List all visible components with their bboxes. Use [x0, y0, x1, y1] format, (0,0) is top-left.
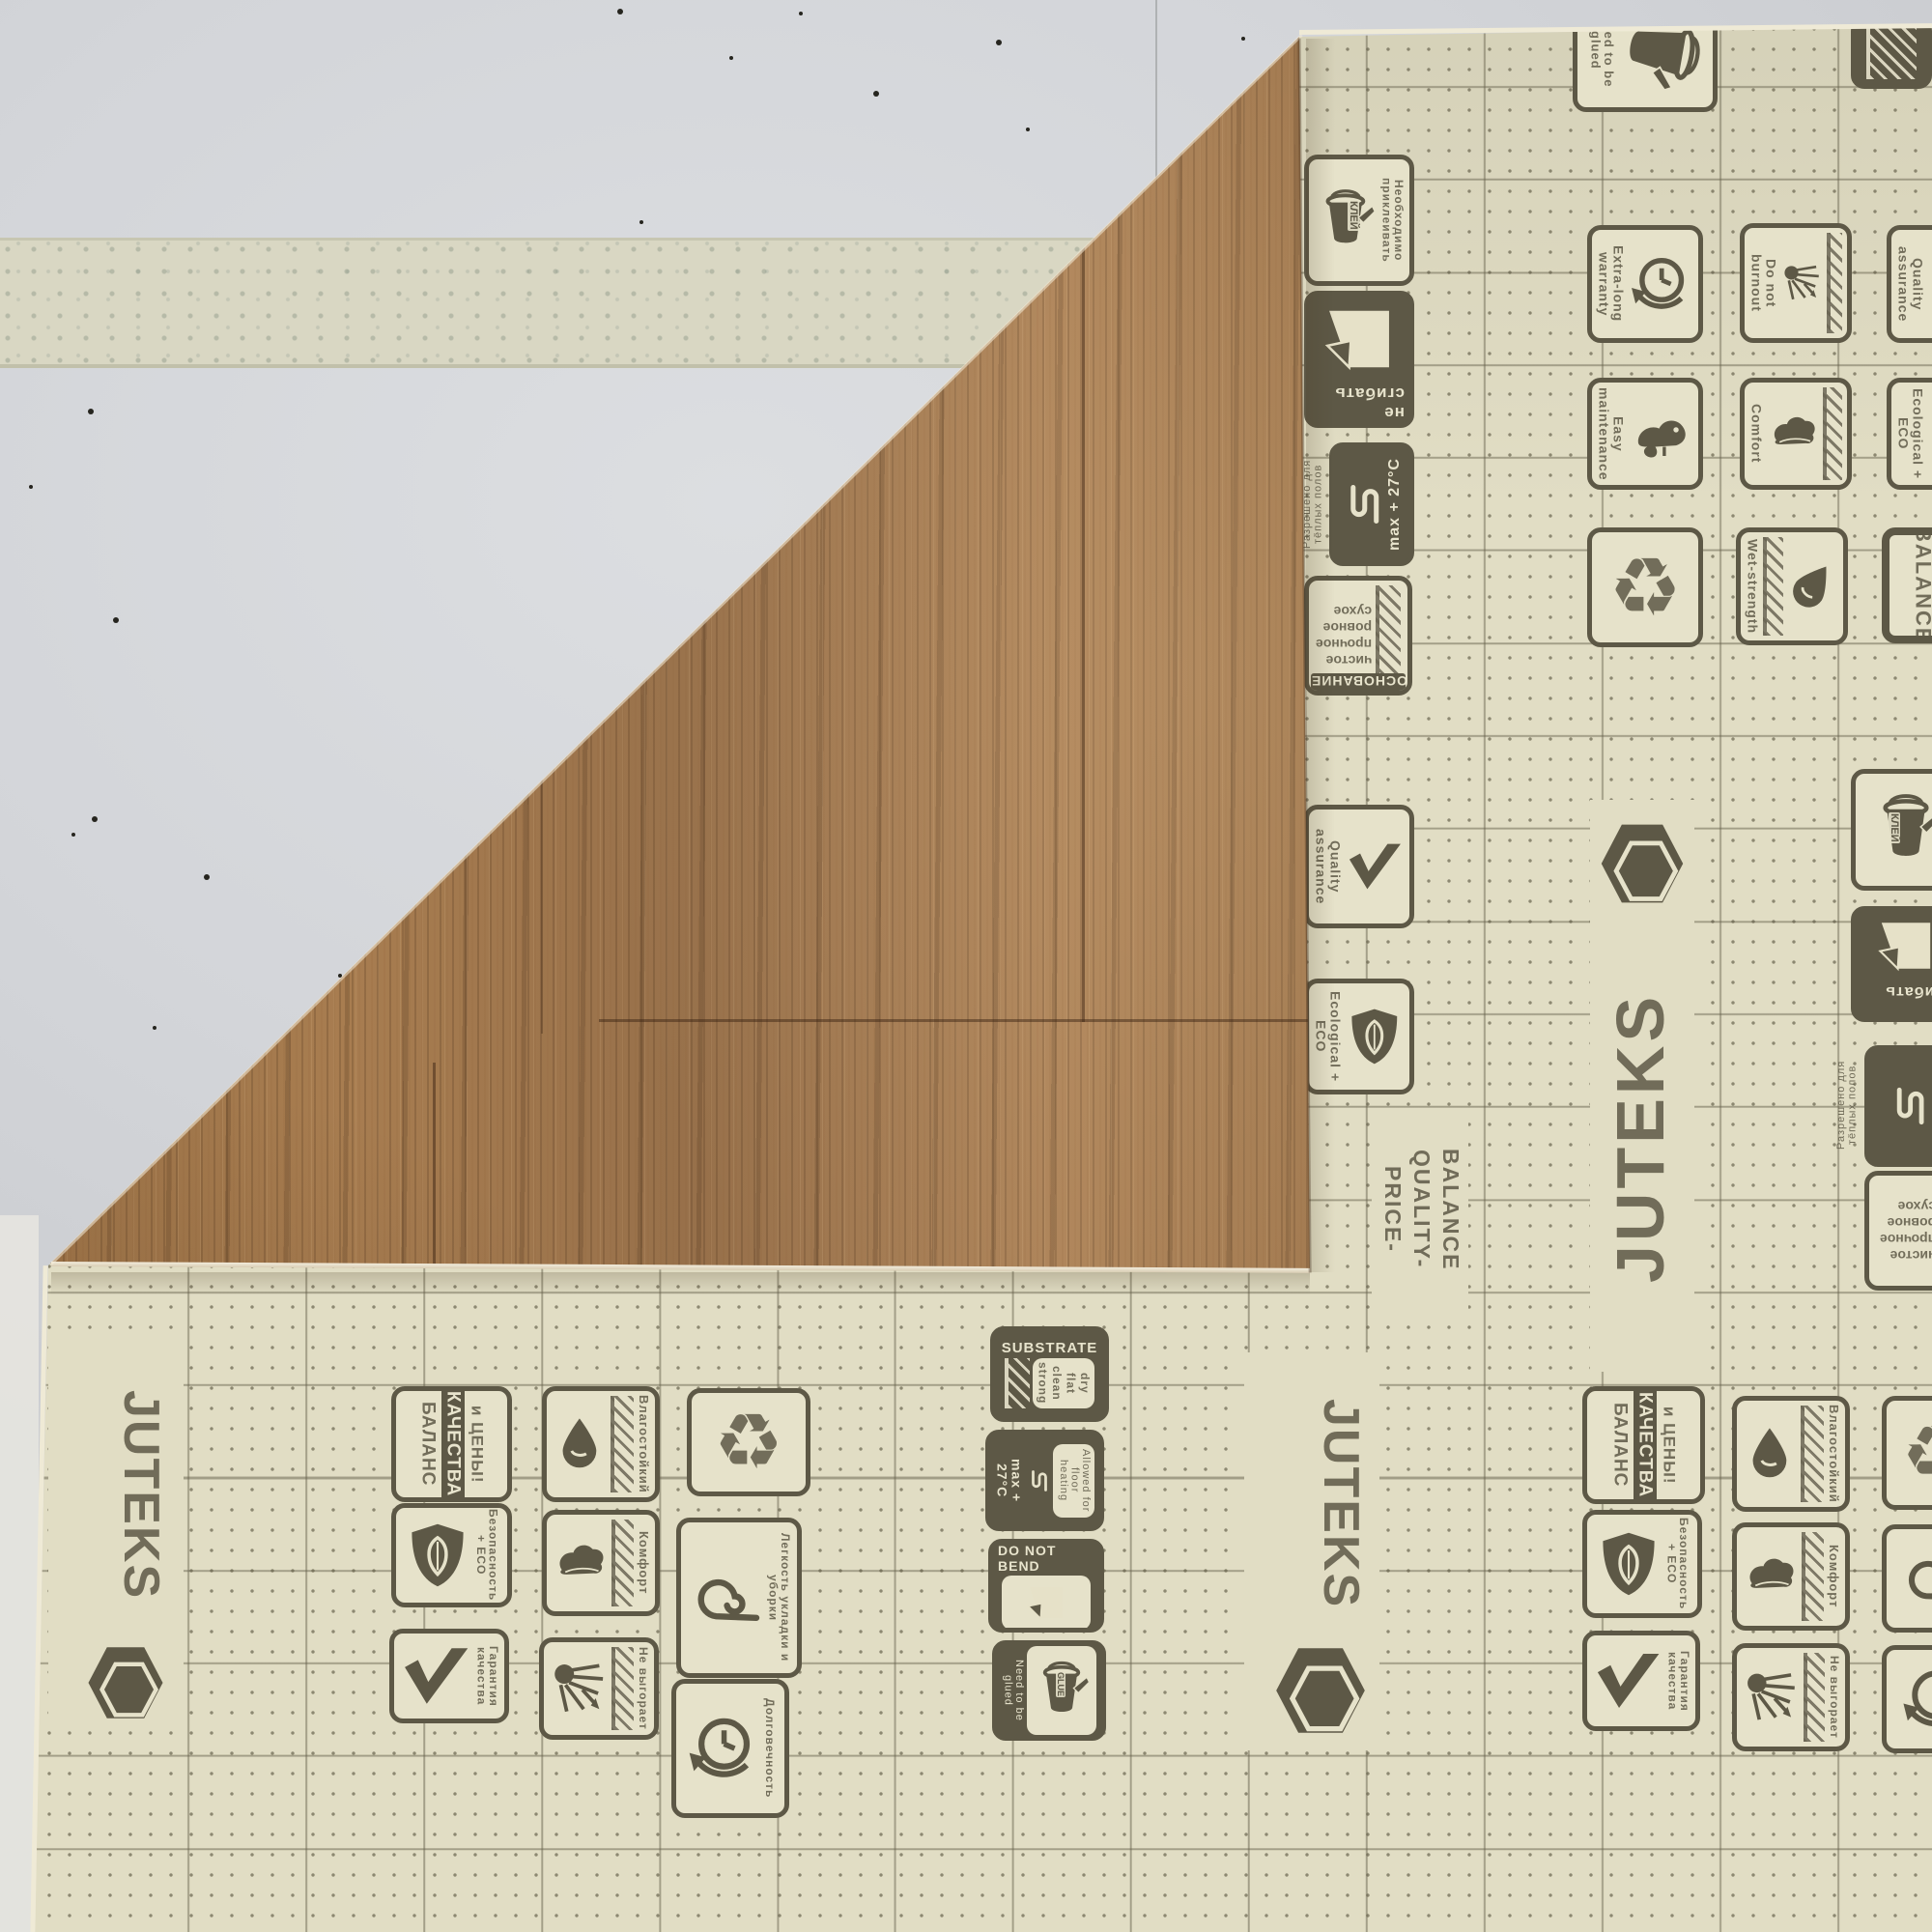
- tile-label: Не выгорает: [1828, 1656, 1840, 1739]
- tile-label: Необходимо приклеивать: [1380, 164, 1405, 276]
- plank-seam: [433, 1063, 436, 1265]
- clock-warranty-icon: [1628, 240, 1693, 328]
- tile-easy-maintenance: Easy maintenance: [1587, 378, 1703, 490]
- tile-glue-ru-partial: КЛЕЙ: [1851, 769, 1932, 891]
- heating-note: Allowed for floor heating: [1057, 1448, 1091, 1514]
- clock-warranty-icon: [685, 1704, 760, 1793]
- juteks-hexagon-logo: [1267, 1642, 1374, 1739]
- tile-safety-eco-ru: Безопасность + ECO: [1582, 1510, 1702, 1618]
- shield-leaf-icon: [404, 1512, 471, 1599]
- glue-panel: GLUE: [1027, 1646, 1096, 1735]
- tile-label: Extra-long warranty: [1597, 235, 1625, 333]
- debris-specks: [0, 0, 4, 4]
- substrate-body: dry flat clean strong: [1005, 1358, 1094, 1408]
- hatch-icon: [611, 1647, 634, 1730]
- tile-label: Comfort: [1749, 404, 1764, 463]
- tile-extra-long-warranty: Extra-long warranty: [1587, 225, 1703, 343]
- tile-no-fade-ru: Не выгорает: [539, 1637, 659, 1740]
- tile-label: max + 27°C: [1387, 458, 1404, 551]
- juteks-hexagon-logo: [73, 1642, 178, 1723]
- condition: strong: [1037, 1362, 1049, 1404]
- juteks-wordmark: JUTEKS: [1602, 920, 1690, 1356]
- hatch-icon: [1827, 233, 1842, 333]
- shield-leaf-icon: [1345, 994, 1405, 1079]
- balance-word: БАЛАНС: [418, 1402, 438, 1486]
- tile-title: SUBSTRATE: [1002, 1340, 1098, 1356]
- tile-label: Безопасность + ECO: [474, 1509, 498, 1601]
- tile-comfort: Comfort: [1740, 378, 1852, 490]
- tile-label: Quality assurance: [1896, 235, 1924, 333]
- juteks-hexagon-logo: [1596, 808, 1689, 920]
- balance-word: БАЛАНС: [1610, 1403, 1630, 1487]
- tile-do-not-bend-en: DO NOT BEND: [988, 1539, 1104, 1633]
- fold-shadow-bottom: [51, 1272, 1310, 1295]
- folded-sheet-icon: [1021, 1579, 1071, 1626]
- tile-label: Need to be glued: [1002, 1650, 1024, 1731]
- sun-icon: [1780, 239, 1823, 327]
- hatch-icon: [1376, 585, 1401, 686]
- plank-seam: [599, 1019, 1310, 1022]
- tile-title: DO NOT BEND: [998, 1543, 1094, 1574]
- tile-label: Easy maintenance: [1597, 387, 1625, 481]
- beret-icon: [552, 1525, 609, 1601]
- balance-word: и ЦЕНЫ!: [1661, 1406, 1678, 1485]
- tile-balance-quality-price-ru: БАЛАНС КАЧЕСТВА и ЦЕНЫ!: [391, 1386, 512, 1502]
- warm-floor-label: Разрешено для тёплых полов: [1836, 1051, 1859, 1159]
- tile-label: Do not burnout: [1749, 233, 1777, 333]
- hatch-icon: [1802, 1532, 1824, 1621]
- tile-recyclable-partial: ♻: [1882, 1396, 1932, 1510]
- floor-heating-loop-icon: [1026, 1440, 1050, 1521]
- glue-bucket-label: КЛЕЙ: [1348, 200, 1359, 231]
- tile-substrate-en: SUBSTRATE dry flat clean strong: [990, 1326, 1109, 1422]
- condition: flat: [1065, 1373, 1077, 1394]
- tile-no-fade-ru: Не выгорает: [1732, 1643, 1850, 1751]
- tile-max27-ru: max + 27°C: [1329, 442, 1414, 566]
- tile-label: Долговечность: [763, 1698, 776, 1798]
- tile-max27-ru-partial: [1864, 1045, 1932, 1167]
- tile-durability-partial: [1882, 1645, 1932, 1753]
- sun-icon: [549, 1648, 609, 1729]
- tile-label: Комфорт: [1827, 1545, 1840, 1607]
- checkmark-icon: [1592, 1641, 1663, 1720]
- checkmark-icon: [399, 1637, 472, 1715]
- tile-label: Гарантия качества: [475, 1638, 499, 1714]
- rolled-sheet-icon: [1898, 1538, 1932, 1619]
- fold-shadow-crease: [1306, 39, 1335, 1272]
- checkmark-icon: [1927, 242, 1932, 326]
- hatch-icon: [1866, 27, 1917, 79]
- tile-moisture-resistant: Влагостойкий: [542, 1386, 660, 1502]
- hatch-icon: [611, 1396, 635, 1492]
- juteks-wordmark: JUTEKS: [1256, 1365, 1370, 1643]
- condition: dry: [1079, 1373, 1092, 1394]
- shield-leaf-icon: [1927, 392, 1932, 475]
- tile-comfort-ru: Комфорт: [542, 1510, 660, 1616]
- tile-recyclable: ♻: [1587, 527, 1703, 647]
- tile-easy-installation-partial: [1882, 1524, 1932, 1633]
- tile-max27-en: max + 27°C Allowed for floor heating: [985, 1430, 1104, 1531]
- substrate-conditions: сухое ровное прочное чистое: [1880, 1199, 1932, 1264]
- fold-panel: [1002, 1576, 1091, 1630]
- tile-label: Wet-strength: [1746, 539, 1760, 634]
- folded-sheet-icon: [1872, 912, 1932, 980]
- masking-tape: [0, 238, 1121, 368]
- glue-bucket-label: GLUE: [1056, 1671, 1065, 1697]
- price-word: QUALITY-: [1410, 1150, 1434, 1268]
- tile-balance-partial: BALANCE: [1882, 527, 1932, 643]
- floor-heating-loop-icon: [1887, 1058, 1929, 1154]
- recycle-icon: ♻: [714, 1404, 783, 1481]
- tile-quality-assurance-partial: Quality assurance: [1887, 225, 1932, 343]
- droplet-icon: [1742, 1413, 1798, 1494]
- tile-balance-quality-price-ru: БАЛАНС КАЧЕСТВА и ЦЕНЫ!: [1582, 1386, 1705, 1504]
- condition: чистое: [1880, 1248, 1932, 1264]
- tile-ecological-eco-partial: Ecological + ECO: [1887, 378, 1932, 490]
- floor-heating-loop-icon: [1340, 454, 1384, 554]
- price-quality-balance-block: PRICE- QUALITY- BALANCE: [1378, 1117, 1466, 1302]
- price-word: PRICE-: [1381, 1166, 1405, 1253]
- tile-durability-ru: Долговечность: [671, 1679, 789, 1818]
- tile-recyclable: ♻: [687, 1388, 810, 1496]
- tile-label: Не выгорает: [637, 1647, 649, 1730]
- shield-leaf-icon: [1595, 1520, 1662, 1608]
- plank-seam: [1082, 164, 1085, 1022]
- tile-moisture-resistant: Влагостойкий: [1732, 1396, 1850, 1512]
- tile-safety-eco-ru: Безопасность + ECO: [391, 1503, 512, 1607]
- glue-bucket-icon: [1869, 782, 1932, 877]
- balance-word: и ЦЕНЫ!: [469, 1406, 486, 1484]
- recycle-icon: ♻: [1608, 547, 1681, 628]
- tile-quality-guarantee-ru: Гарантия качества: [389, 1629, 509, 1723]
- clock-warranty-icon: [1899, 1657, 1932, 1742]
- tile-label: BALANCE: [1912, 527, 1932, 643]
- hatch-icon: [1801, 1406, 1825, 1502]
- tile-label: Ecological + ECO: [1896, 387, 1924, 480]
- rolled-sheet-icon: [687, 1554, 764, 1641]
- condition: прочное: [1880, 1232, 1932, 1247]
- price-word: BALANCE: [1439, 1149, 1463, 1270]
- tile-label: Влагостойкий: [1827, 1405, 1840, 1503]
- tile-label: Безопасность + ECO: [1665, 1518, 1690, 1609]
- heating-note-panel: Allowed for floor heating: [1053, 1444, 1094, 1518]
- hatch-icon: [611, 1520, 634, 1606]
- recycle-icon: ♻: [1902, 1416, 1932, 1490]
- photo-linoleum-scene: Need to be glued Extra-long warranty Do …: [0, 0, 1932, 1932]
- condition: clean: [1050, 1366, 1063, 1401]
- tile-label: Гарантия качества: [1666, 1640, 1690, 1721]
- chameleon-icon: [1628, 393, 1693, 474]
- substrate-conditions: dry flat clean strong: [1033, 1358, 1094, 1408]
- droplet-icon: [552, 1404, 608, 1485]
- tile-substrate-ru-partial: сухое ровное прочное чистое: [1864, 1171, 1932, 1291]
- tile-do-not-bend-ru-partial: не сгибать: [1851, 906, 1932, 1022]
- glue-bucket-label: КЛЕЙ: [1889, 812, 1900, 843]
- tile-wet-strength: Wet-strength: [1736, 527, 1848, 645]
- tile-quality-guarantee-ru: Гарантия качества: [1582, 1631, 1700, 1731]
- tile-label: Комфорт: [637, 1531, 650, 1594]
- tile-need-to-be-glued-en: Need to be glued GLUE: [992, 1640, 1106, 1741]
- tile-label: не сгибать: [1861, 982, 1932, 1017]
- tile-label: Легкость укладки и уборки: [767, 1527, 791, 1668]
- balance-word: КАЧЕСТВА: [1634, 1388, 1657, 1501]
- beret-icon: [1767, 395, 1820, 472]
- beret-icon: [1742, 1539, 1799, 1614]
- checkmark-icon: [1345, 823, 1405, 910]
- tile-comfort-ru: Комфорт: [1732, 1522, 1850, 1631]
- tile-do-not-burnout: Do not burnout: [1740, 223, 1852, 343]
- hatch-icon: [1005, 1358, 1030, 1408]
- sun-icon: [1742, 1656, 1801, 1739]
- condition: ровное: [1880, 1215, 1932, 1231]
- hatch-icon: [1804, 1653, 1826, 1742]
- condition: сухое: [1880, 1199, 1932, 1214]
- tile-label: max + 27°C: [995, 1439, 1023, 1521]
- tile-label: Влагостойкий: [637, 1395, 650, 1493]
- tile-easy-installation-ru: Легкость укладки и уборки: [676, 1518, 802, 1678]
- juteks-wordmark: JUTEKS: [62, 1354, 170, 1636]
- balance-word: КАЧЕСТВА: [441, 1387, 465, 1500]
- hatch-icon: [1823, 387, 1842, 480]
